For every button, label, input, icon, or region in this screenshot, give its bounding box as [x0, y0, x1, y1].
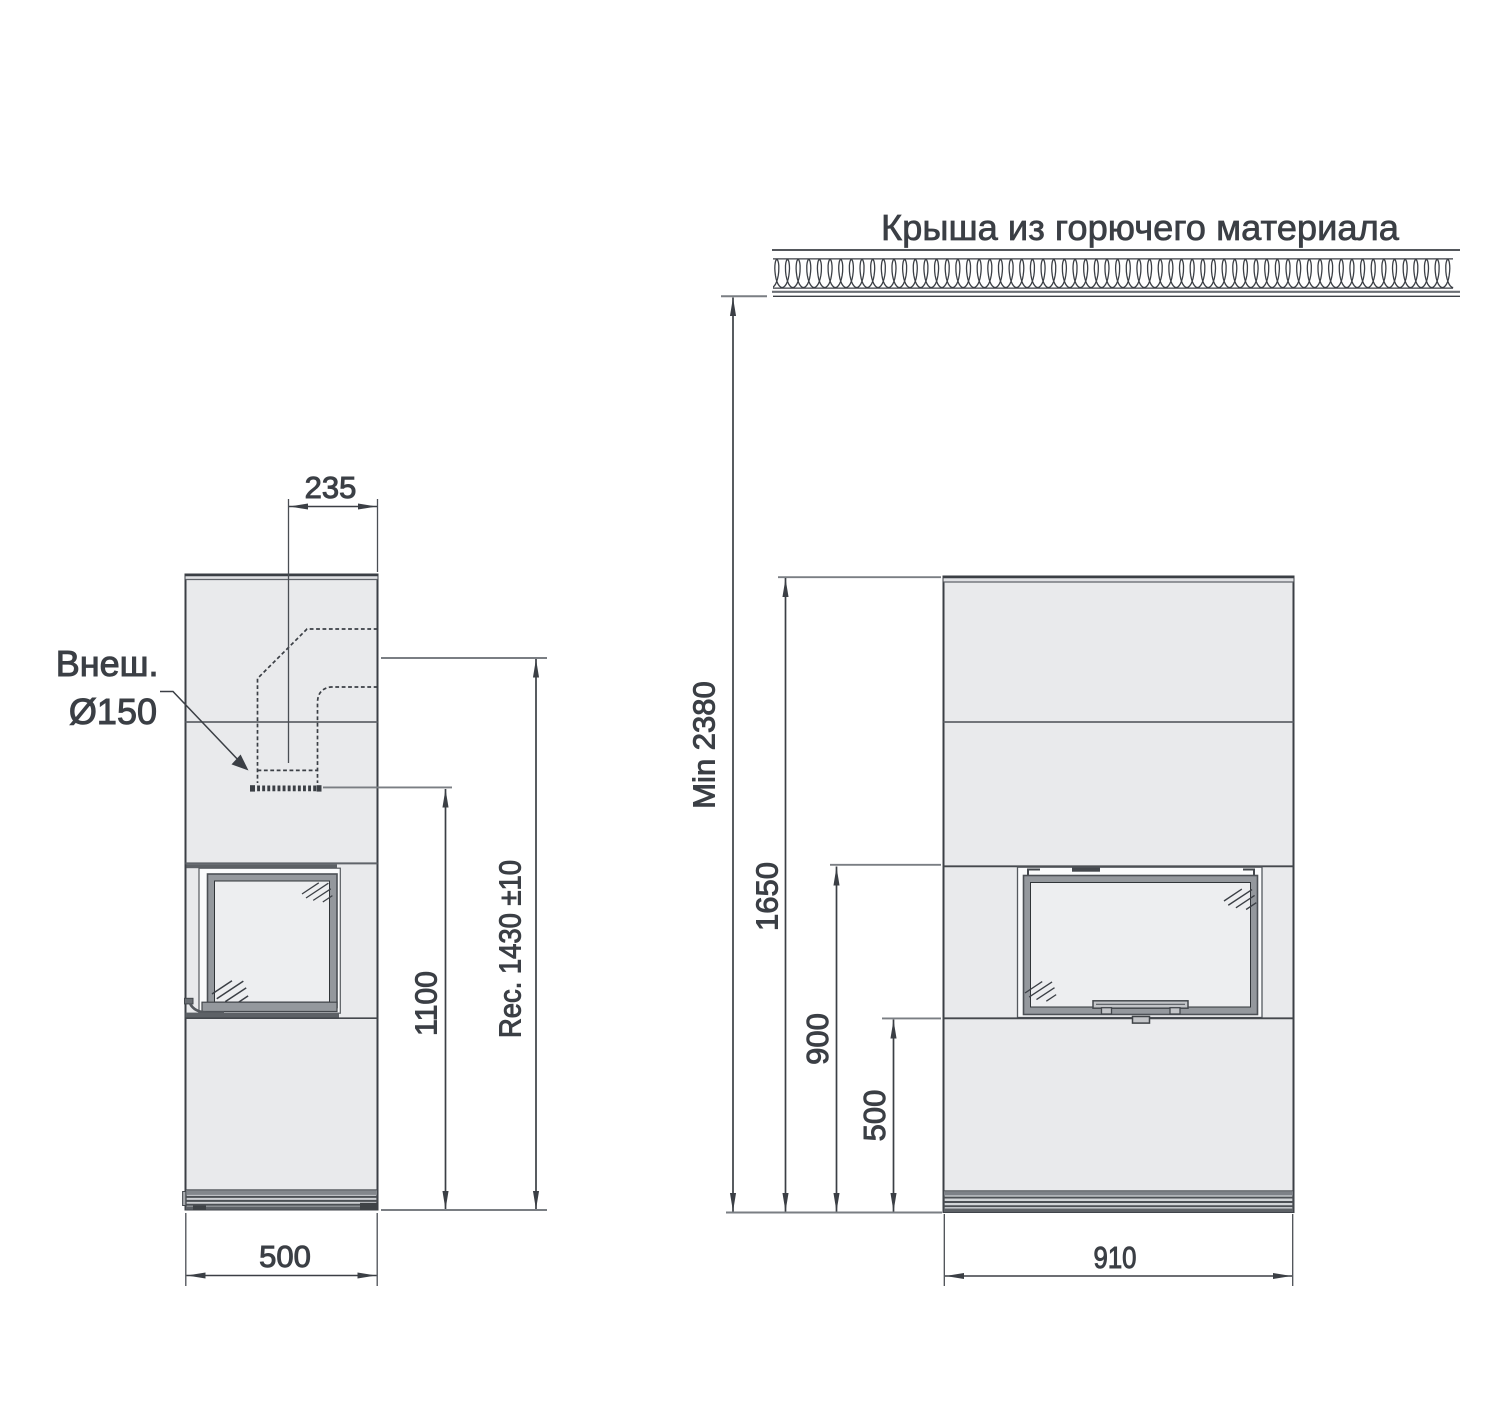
svg-text:910: 910 [1094, 1240, 1137, 1275]
svg-text:Внеш.: Внеш. [56, 643, 159, 684]
svg-text:Ø150: Ø150 [69, 691, 157, 732]
svg-text:1650: 1650 [750, 862, 785, 931]
svg-text:235: 235 [305, 470, 357, 505]
svg-text:Rec. 1430 ±10: Rec. 1430 ±10 [493, 860, 528, 1038]
svg-text:500: 500 [857, 1090, 892, 1142]
svg-text:900: 900 [800, 1013, 835, 1065]
svg-text:Min 2380: Min 2380 [687, 681, 722, 809]
svg-text:Крыша из горючего материала: Крыша из горючего материала [881, 207, 1400, 248]
svg-text:1100: 1100 [409, 971, 444, 1036]
svg-text:500: 500 [259, 1239, 311, 1274]
